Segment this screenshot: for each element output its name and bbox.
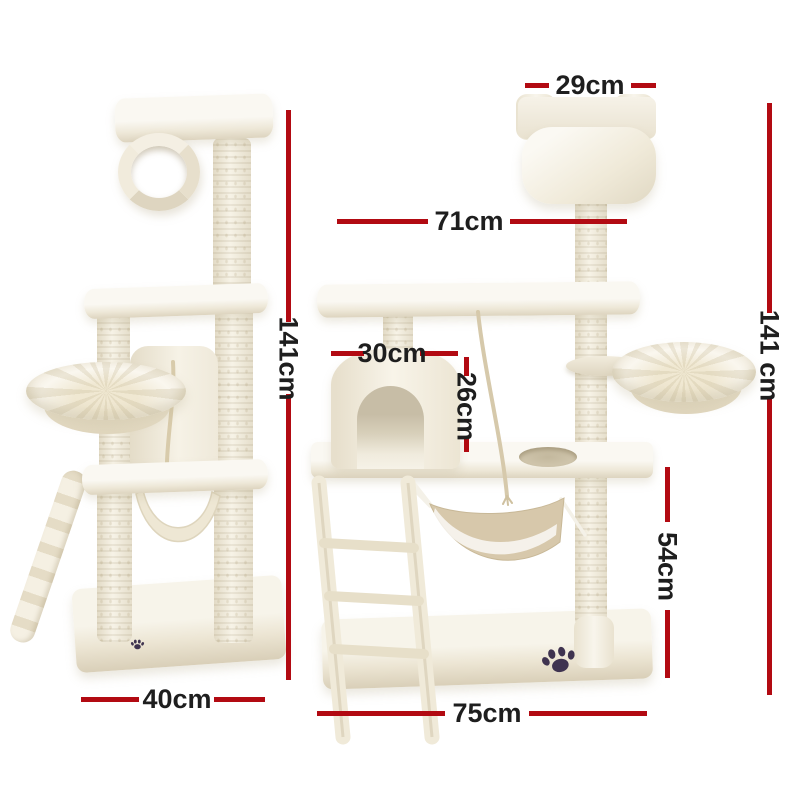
dimension-line [317, 711, 445, 716]
dimension-annotations: 29cm 71cm 141cm 141 cm 30cm 26cm 54cm 40… [0, 0, 800, 800]
product-diagram: 29cm 71cm 141cm 141 cm 30cm 26cm 54cm 40… [0, 0, 800, 800]
dimension-line [665, 467, 670, 522]
dimension-line [529, 711, 647, 716]
dimension-label-total-height-right: 141 cm [756, 306, 783, 406]
dimension-line [767, 397, 772, 695]
dimension-line [631, 83, 656, 88]
dimension-line [767, 103, 772, 313]
dimension-line [81, 697, 139, 702]
dimension-line [286, 394, 291, 680]
dimension-label-top-box-width: 29cm [549, 72, 631, 99]
dimension-label-base-depth: 40cm [139, 686, 215, 713]
dimension-line [337, 219, 428, 224]
dimension-line [286, 110, 291, 322]
dimension-label-platform-width: 71cm [428, 208, 510, 235]
dimension-line [214, 697, 265, 702]
dimension-label-condo-height: 26cm [453, 367, 480, 447]
dimension-label-base-width: 75cm [447, 700, 527, 727]
dimension-line [665, 610, 670, 678]
dimension-label-condo-width: 30cm [352, 340, 432, 367]
dimension-line [510, 219, 627, 224]
dimension-label-total-height-left: 141cm [275, 314, 302, 404]
dimension-label-lower-section-height: 54cm [654, 527, 681, 607]
dimension-line [525, 83, 549, 88]
